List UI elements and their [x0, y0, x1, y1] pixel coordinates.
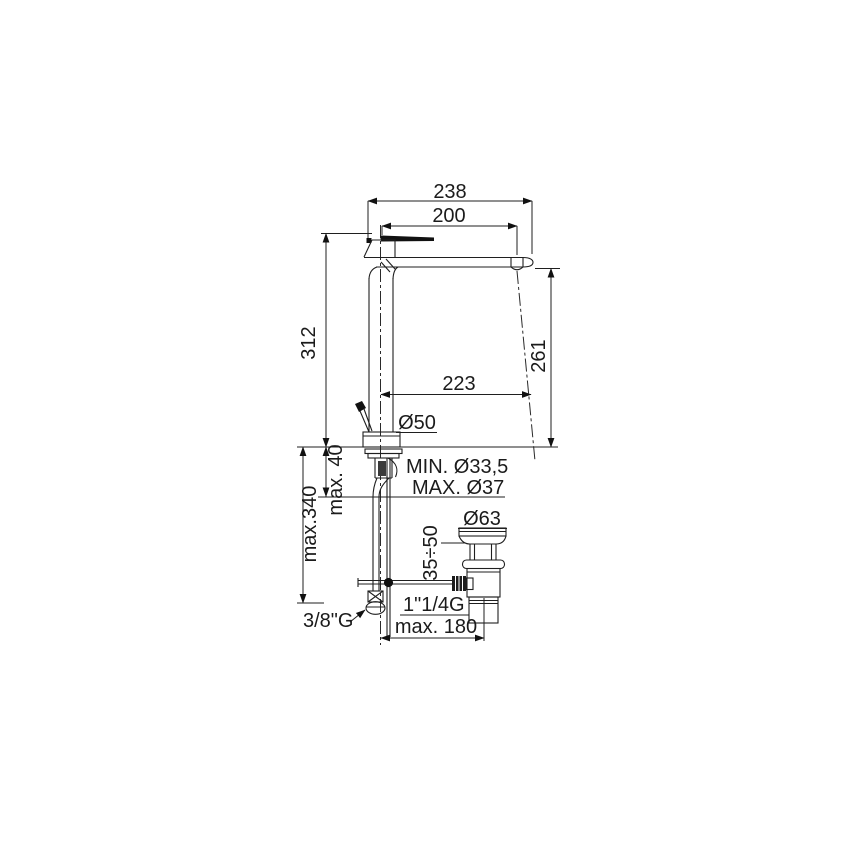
label-supply-thread: 3/8"G [303, 610, 353, 632]
dim-label-180: max. 180 [395, 616, 477, 638]
dim-label-d50: Ø50 [398, 412, 436, 434]
waste-flange [463, 560, 505, 569]
dim-label-238: 238 [433, 181, 466, 203]
label-max-hole: MAX. Ø37 [412, 477, 504, 499]
label-min-hole: MIN. Ø33,5 [406, 456, 508, 478]
handle-lever [380, 236, 434, 242]
dim-deck-thickness: max. 40 [325, 444, 347, 515]
faucet-dimension-drawing: 238 200 312 261 223 Ø50 max. 40 max.340 [0, 0, 868, 868]
label-waste-thread: 1"1/4G [403, 594, 465, 616]
popup-vertical-rod [387, 458, 390, 637]
dim-spout-reach: 200 [382, 205, 517, 255]
supply-thread-note: 3/8"G [303, 610, 365, 632]
dim-base-diameter: Ø50 [396, 412, 437, 434]
dim-body-height: 312 [298, 234, 372, 448]
popup-rod-ball-joint [384, 578, 393, 587]
dim-label-223: 223 [442, 373, 475, 395]
mounting-washer-bottom [368, 454, 399, 459]
fitting-cross-lines [368, 591, 383, 602]
spout-column-transition [369, 259, 398, 279]
dim-label-40: max. 40 [325, 444, 347, 515]
mounting-washer-top [365, 449, 402, 454]
base-flange [363, 432, 400, 447]
technical-drawing-canvas: 238 200 312 261 223 Ø50 max. 40 max.340 [0, 0, 868, 868]
popup-lever-rod [360, 409, 372, 432]
hose-end-fitting [366, 591, 385, 614]
dim-label-200: 200 [432, 205, 465, 227]
dim-label-d63: Ø63 [463, 508, 501, 530]
faucet-body [355, 236, 533, 448]
waste-thread-note: 1"1/4G [400, 594, 469, 616]
waste-cap-underside [459, 536, 506, 544]
dim-hose-reach: max.340 [297, 447, 324, 603]
waste-neck [470, 544, 496, 560]
fitting-cap [366, 602, 385, 615]
mounting-stud [378, 461, 386, 476]
dim-label-312: 312 [298, 326, 320, 359]
dim-label-3550: 35÷50 [420, 525, 442, 580]
dim-waste-cap: Ø63 [458, 508, 507, 530]
waste-body [467, 569, 500, 598]
dim-outlet-offset: 223 [381, 373, 531, 395]
dim-spout-height: 261 [528, 269, 560, 448]
dim-label-261: 261 [528, 339, 550, 372]
dim-label-340: max.340 [299, 486, 321, 563]
